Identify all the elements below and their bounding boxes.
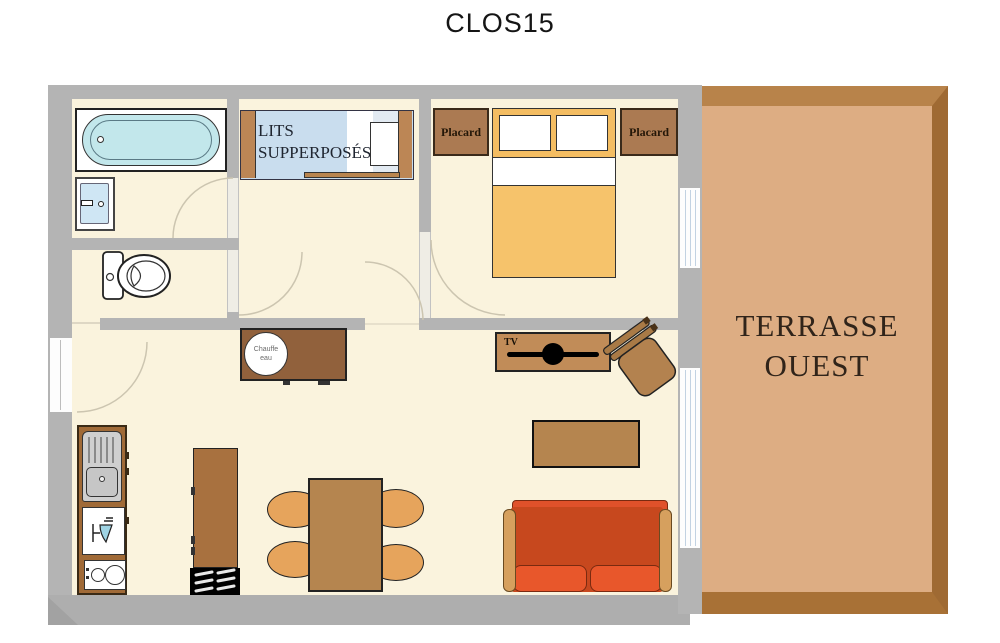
terrace: TERRASSE OUEST: [702, 86, 948, 614]
kitchen-drainer: [88, 437, 116, 463]
sofa-cushion-left: [513, 565, 587, 592]
dining-table: [308, 478, 383, 592]
coffee-table: [532, 420, 640, 468]
bunk-bed-label: LITS SUPPERPOSÉS: [258, 120, 371, 164]
wall-bathroom-mid: [227, 238, 239, 250]
water-heater: Chauffe eau: [244, 332, 288, 376]
tv-base: [542, 343, 564, 365]
double-bed-headboard: [492, 108, 616, 158]
cabinet-foot: [283, 381, 290, 385]
placard-right-label: Placard: [629, 125, 669, 140]
bathtub: [75, 108, 227, 172]
bunk-bed-label-line2: SUPPERPOSÉS: [258, 142, 371, 164]
page-title: CLOS15: [0, 8, 1000, 39]
cooktop-knob: [86, 576, 89, 579]
bathtub-drain: [97, 136, 104, 143]
water-heater-label-line1: Chauffe: [254, 345, 278, 354]
terrace-label: TERRASSE OUEST: [702, 306, 932, 386]
terrace-label-line1: TERRASSE: [702, 306, 932, 346]
cooktop: [84, 560, 126, 590]
wall-bottom: [48, 595, 690, 625]
wall-bedroom: [419, 99, 431, 232]
fridge-vent: [190, 568, 240, 595]
kitchen-sink-module: [82, 431, 122, 502]
bedroom-window: [680, 188, 700, 268]
tv-label: TV: [504, 337, 518, 348]
fridge-handle: [191, 547, 195, 555]
bed-pillow-right: [556, 115, 608, 151]
bunk-bed-pillow: [370, 122, 400, 166]
window-pane-line: [685, 370, 686, 546]
sofa-cushion-right: [590, 565, 662, 592]
window-pane-line: [695, 190, 696, 266]
tv-stand: TV: [495, 332, 611, 372]
burner-small: [91, 568, 105, 582]
sofa-armrest-left: [503, 509, 516, 592]
bed-pillow-left: [499, 115, 551, 151]
entry-door-line: [60, 340, 61, 410]
placard-left-label: Placard: [441, 125, 481, 140]
wc-door-opening: [227, 250, 239, 312]
fridge-handle: [191, 536, 195, 544]
bedroom-door-opening: [419, 232, 431, 318]
cooktop-knob: [86, 568, 89, 571]
placard-right: Placard: [620, 108, 678, 156]
double-bed-blanket: [492, 186, 616, 278]
kitchen-sink-basin: [86, 467, 118, 497]
bathroom-door-opening: [227, 178, 239, 238]
bunk-bed-rail: [304, 172, 400, 178]
sofa-armrest-right: [659, 509, 672, 592]
bunk-bed-post-right: [398, 111, 412, 178]
kitchen-handle: [125, 468, 129, 475]
burner-large: [105, 565, 125, 585]
bunk-bed-post-left: [241, 111, 256, 178]
sink-knob: [98, 201, 104, 207]
sink-faucet: [81, 200, 93, 206]
window-pane-line: [690, 190, 691, 266]
wall-bathroom-lower: [227, 312, 239, 330]
double-bed-sheet: [492, 158, 616, 186]
kitchen-unit: [77, 425, 127, 595]
kitchen-handle: [125, 452, 129, 459]
fridge: [193, 448, 238, 568]
wall-top: [48, 85, 700, 99]
bathtub-inner-line: [90, 120, 212, 160]
cabinet-foot: [318, 381, 330, 385]
window-pane-line: [685, 190, 686, 266]
placard-left: Placard: [433, 108, 489, 156]
wall-divider-right: [419, 318, 690, 330]
floor-plan-page: CLOS15 TERRASSE OUEST: [0, 0, 1000, 643]
window-pane-line: [690, 370, 691, 546]
bunk-bed-label-line1: LITS: [258, 120, 371, 142]
bathroom-sink: [75, 177, 115, 231]
kitchen-sink-drain: [99, 476, 105, 482]
kitchen-handle: [125, 517, 129, 524]
dishwasher: [82, 507, 125, 555]
living-room-window: [680, 368, 700, 548]
terrace-label-line2: OUEST: [702, 346, 932, 386]
fridge-handle: [191, 487, 195, 495]
wall-bathroom-upper: [227, 99, 239, 178]
water-heater-label-line2: eau: [260, 354, 272, 363]
entry-door-opening: [50, 338, 72, 412]
window-pane-line: [695, 370, 696, 546]
wall-bath-wc-partition: [72, 238, 227, 250]
